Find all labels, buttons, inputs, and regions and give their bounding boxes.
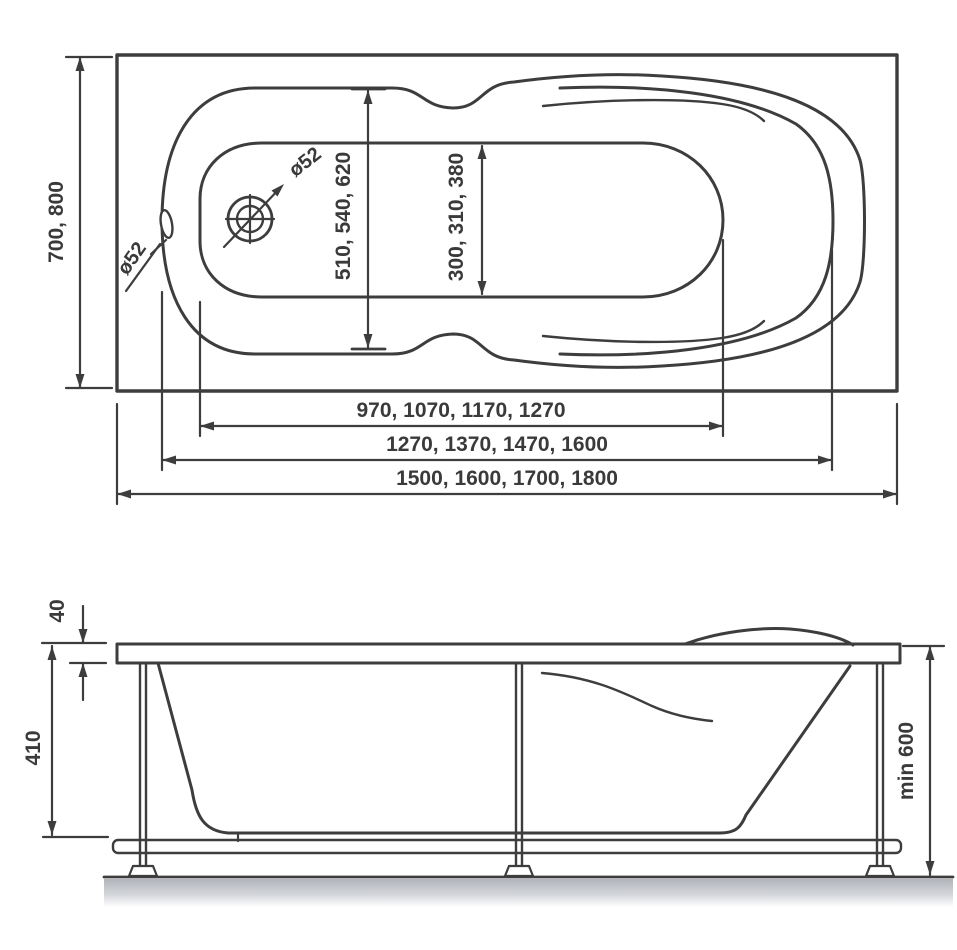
depth-label: 410 <box>22 730 45 765</box>
overflow: ø52 <box>113 209 174 291</box>
top-view: ø52 ø52 700, 800 <box>45 55 897 504</box>
inner-width-label: 510, 540, 620 <box>332 152 355 280</box>
rim-thickness-label: 40 <box>46 599 69 622</box>
overall-width-label: 700, 800 <box>45 181 68 263</box>
dim-inner-width: 510, 540, 620 <box>332 89 385 349</box>
dim-basin-width: 300, 310, 380 <box>445 145 487 295</box>
arrow-down <box>926 861 935 875</box>
frame-rail <box>113 840 901 853</box>
dim-depth: 410 <box>22 646 108 837</box>
leg-foot <box>866 866 894 876</box>
bathtub-technical-drawing: ø52 ø52 700, 800 <box>0 0 957 950</box>
arrow-up <box>926 646 935 660</box>
arrow-down <box>76 374 85 388</box>
tub-interior-line-top <box>543 100 764 121</box>
overall-length-label: 1500, 1600, 1700, 1800 <box>396 467 618 490</box>
arrow-down <box>48 821 57 835</box>
tub-rim-inner-contour <box>560 87 833 355</box>
drain-diameter-label: ø52 <box>285 143 326 182</box>
arrow-left <box>200 422 214 431</box>
floor-shadow <box>104 879 953 907</box>
side-view: 40 410 min 600 <box>22 599 953 907</box>
dim-overall-width: 700, 800 <box>45 57 112 388</box>
leg-foot <box>505 866 533 876</box>
leg-foot <box>129 866 157 876</box>
dim-min-height: min 600 <box>895 646 944 875</box>
tub-interior-line-bottom <box>543 321 764 342</box>
rim-bar <box>117 644 900 663</box>
inner-length-label: 1270, 1370, 1470, 1600 <box>386 433 608 456</box>
arrow-left <box>162 456 176 465</box>
overflow-diameter-label: ø52 <box>113 238 151 279</box>
tub-rim-outer-contour <box>162 75 865 368</box>
min-height-label: min 600 <box>895 722 918 800</box>
arrow-right <box>818 456 832 465</box>
arrow-left <box>117 490 131 499</box>
arrow-up <box>478 145 487 159</box>
arrow-right <box>709 422 723 431</box>
arrow-up <box>48 646 57 660</box>
arrow-right <box>883 490 897 499</box>
basin-length-label: 970, 1070, 1170, 1270 <box>356 399 565 422</box>
top-view-outer-rect <box>117 55 897 391</box>
tub-profile <box>158 663 850 833</box>
tub-interior-curve <box>542 673 712 721</box>
arrow-down <box>364 334 373 348</box>
arrow-up <box>76 57 85 71</box>
basin-width-label: 300, 310, 380 <box>445 153 468 281</box>
arrow-down <box>478 281 487 295</box>
drain: ø52 <box>224 143 326 247</box>
arrow-up <box>79 663 88 677</box>
drawing-svg: ø52 ø52 700, 800 <box>0 0 957 950</box>
arrow-up <box>364 90 373 104</box>
arrow-down <box>79 629 88 643</box>
